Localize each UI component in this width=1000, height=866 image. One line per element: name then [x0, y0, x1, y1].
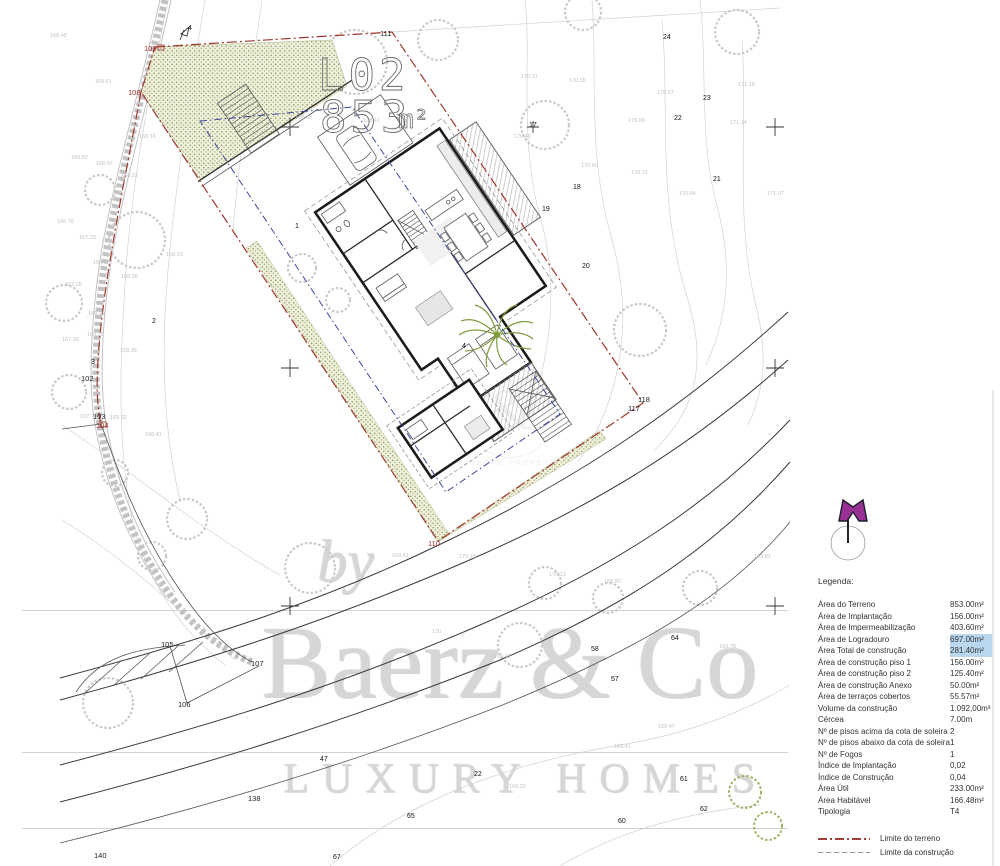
legend-row-value: 1.092,00m³	[950, 703, 992, 715]
legend-rows: Área do Terreno 853.00m² Área de Implant…	[818, 599, 992, 818]
plan-label: 170.66	[628, 118, 645, 124]
plan-label: 169.61	[392, 553, 409, 559]
plan-label: 60	[618, 818, 626, 825]
plan-label: 21	[713, 176, 721, 183]
plan-label: 106	[178, 700, 191, 709]
site-plan-sheet: by Baerz & Co LUXURY HOMES & BESPOKE PRO…	[0, 0, 1000, 866]
legend-row-label: Área Total de construção	[818, 645, 950, 657]
plan-label: 62	[700, 806, 708, 813]
legend-row-label: Volume da construção	[818, 703, 950, 715]
legend-row-label: Área de construção piso 2	[818, 668, 950, 680]
plan-label: 110	[428, 539, 440, 548]
terrain-line-swatch-icon	[818, 838, 870, 840]
legend-row: Cércea 7.00m	[818, 714, 992, 726]
legend-row-value: 281.40m²	[950, 645, 992, 657]
plan-label: 168.26	[121, 274, 138, 280]
plan-label: 170.46	[514, 134, 531, 140]
plan-label: 138	[248, 794, 261, 803]
plan-label: 22	[474, 771, 482, 778]
plan-label: 170.13	[549, 572, 566, 578]
construction-line-label: Limite da construção	[880, 848, 954, 857]
plan-label: 168.25	[87, 332, 104, 338]
plan-label: 107	[251, 659, 264, 668]
legend-row-label: Nº de pisos acima da cota de soleira	[818, 726, 950, 738]
legend-row: Área de Logradouro 697.00m²	[818, 634, 992, 646]
plan-label: 169.47	[658, 724, 675, 730]
plan-label: 24	[663, 34, 671, 41]
legend-row-label: Área de Implantação	[818, 611, 950, 623]
plan-label: 2	[152, 318, 156, 325]
terrain-line-label: Limite do terreno	[880, 834, 940, 843]
plan-label: 20	[582, 263, 590, 270]
plan-label: 102	[81, 374, 94, 383]
plan-label: 105	[161, 640, 174, 649]
legend-row-label: Área de Impermeabilização	[818, 622, 950, 634]
legend-row-label: Área de terraços cobertos	[818, 691, 950, 703]
north-marker-icon	[831, 500, 867, 560]
plan-label: 168.41	[363, 118, 380, 124]
plan-label: 170.67	[657, 90, 674, 96]
plan-label: 170	[432, 629, 441, 635]
plan-label: 168.97	[96, 161, 113, 167]
plan-label: 170.16	[459, 554, 476, 560]
construction-line-swatch-icon	[818, 852, 870, 854]
legend-row-value: 55.57m²	[950, 691, 992, 703]
legend-row: Área de terraços cobertos 55.57m²	[818, 691, 992, 703]
legend-row: Área de Impermeabilização 403.60m²	[818, 622, 992, 634]
legend-row-value: T4	[950, 806, 992, 818]
plan-label: 170.84	[679, 191, 696, 197]
plan-label: 169.29	[509, 784, 526, 790]
plan-label: 4	[462, 343, 466, 350]
legend-row-label: Nº de Fogos	[818, 749, 950, 761]
legend-row: Nº de pisos acima da cota de soleira 2	[818, 726, 992, 738]
plan-label: 169.80	[604, 579, 621, 585]
plan-label: 169.42	[494, 654, 511, 660]
plan-label: 64	[671, 635, 679, 642]
legend-row-value: 403.60m²	[950, 622, 992, 634]
plan-label: 61	[680, 776, 688, 783]
plan-label: 168.32	[110, 415, 127, 421]
legend-row: Área de construção Anexo 50.00m²	[818, 680, 992, 692]
plan-label: 23	[703, 95, 711, 102]
plan-label: 170.55	[569, 78, 586, 84]
plan-label: 58	[591, 646, 599, 653]
parcel-area-unit: m²	[398, 105, 429, 135]
plan-label: 168.23	[121, 173, 138, 179]
plan-label: 65	[407, 813, 415, 820]
legend-row-value: 125.40m²	[950, 668, 992, 680]
legend-row-label: Índice de Implantação	[818, 760, 950, 772]
plan-label: 169.83	[754, 554, 771, 560]
legend-row-label: Área de Logradouro	[818, 634, 950, 646]
legend-row: Área de Implantação 156.00m²	[818, 611, 992, 623]
legend-title: Legenda:	[818, 576, 992, 586]
plan-label: 57	[611, 676, 619, 683]
plan-label: 171.14	[730, 120, 747, 126]
plan-label: 170.31	[521, 74, 538, 80]
legend-row-value: 50.00m²	[950, 680, 992, 692]
plan-label: 140	[94, 851, 107, 860]
legend-line-samples: Limite do terreno Limite da construção	[818, 832, 992, 860]
legend-row-label: Tipologia	[818, 806, 950, 818]
legend-row-label: Cércea	[818, 714, 950, 726]
legend-row: Índice de Construção 0,04	[818, 772, 992, 784]
legend-row-value: 0,04	[950, 772, 992, 784]
plan-label: 168.61	[95, 79, 112, 85]
plan-label: 170.72	[631, 170, 648, 176]
plan-label: 168.23	[166, 252, 183, 258]
legend-row: Tipologia T4	[818, 806, 992, 818]
legend-row-value: 1	[950, 737, 992, 749]
legend-row-value: 853.00m²	[950, 599, 992, 611]
legend-row-label: Área Habitável	[818, 795, 950, 807]
parcel-label: L02 853 m²	[318, 50, 429, 143]
plan-label: 168.36	[120, 348, 137, 354]
legend-row-value: 2	[950, 726, 992, 738]
legend-row: Volume da construção 1.092,00m³	[818, 703, 992, 715]
plan-label: 168.45	[50, 33, 67, 39]
plan-label: 169.78	[719, 644, 736, 650]
plan-label: 118	[638, 395, 650, 404]
legend-panel: Legenda: Área do Terreno 853.00m² Área d…	[818, 576, 992, 860]
legend-row: Nº de pisos abaixo da cota de soleira 1	[818, 737, 992, 749]
legend-row-label: Área Útil	[818, 783, 950, 795]
legend-row: Área de construção piso 1 156.00m²	[818, 657, 992, 669]
legend-row: Nº de Fogos 1	[818, 749, 992, 761]
legend-row: Área Habitável 166.48m²	[818, 795, 992, 807]
legend-row: Índice de Implantação 0,02	[818, 760, 992, 772]
plan-label: 168.18	[93, 260, 110, 266]
plan-label: 111	[380, 29, 391, 38]
plan-label: 169.41	[614, 744, 631, 750]
plan-label: 168.62	[71, 155, 88, 161]
plan-label: 171.18	[738, 82, 755, 88]
plan-label: 167.26	[62, 337, 79, 343]
plan-label: 19	[542, 206, 550, 213]
plan-label: 67	[333, 854, 341, 861]
legend-row-value: 7.00m	[950, 714, 992, 726]
plan-label: 18	[573, 184, 581, 191]
plan-label: 166.76	[57, 219, 74, 225]
plan-label: 17	[529, 122, 537, 129]
legend-row: Área Útil 233.00m²	[818, 783, 992, 795]
plan-label: 171.07	[767, 191, 784, 197]
legend-row-value: 233.00m²	[950, 783, 992, 795]
legend-row-value: 156.00m²	[950, 611, 992, 623]
plan-label: 108	[128, 88, 141, 97]
plan-label: 167.70	[80, 414, 97, 420]
plan-label: 22	[674, 115, 682, 122]
road	[60, 312, 790, 843]
plan-label: 168.19	[88, 311, 105, 317]
legend-row: Área de construção piso 2 125.40m²	[818, 668, 992, 680]
plan-label: 168.43	[295, 115, 312, 121]
legend-row-label: Área de construção piso 1	[818, 657, 950, 669]
legend-row-value: 166.48m²	[950, 795, 992, 807]
legend-row-label: Índice de Construção	[818, 772, 950, 784]
legend-row-label: Área de construção Anexo	[818, 680, 950, 692]
legend-construction-line: Limite da construção	[818, 846, 992, 860]
plan-label: 168.16	[139, 134, 156, 140]
legend-terrain-line: Limite do terreno	[818, 832, 992, 846]
plan-label: 3	[91, 359, 95, 366]
legend-row-value: 156.00m²	[950, 657, 992, 669]
legend-row: Área Total de construção 281.40m²	[818, 645, 992, 657]
plan-label: 104	[96, 421, 109, 430]
plan-label: 168.41	[145, 432, 162, 438]
legend-row-value: 697.00m²	[950, 634, 992, 646]
plan-label: 109	[144, 44, 157, 53]
legend-row-label: Nº de pisos abaixo da cota de soleira	[818, 737, 950, 749]
legend-row: Área do Terreno 853.00m²	[818, 599, 992, 611]
legend-row-value: 0,02	[950, 760, 992, 772]
legend-row-label: Área do Terreno	[818, 599, 950, 611]
plan-label: 1	[295, 223, 299, 230]
plan-label: 117	[628, 404, 640, 413]
legend-row-value: 1	[950, 749, 992, 761]
plan-label: 167.25	[65, 282, 82, 288]
plan-label: 167.23	[79, 235, 96, 241]
plan-label: 170.60	[581, 163, 598, 169]
plan-label: 4	[188, 25, 192, 32]
plan-label: 47	[320, 756, 328, 763]
